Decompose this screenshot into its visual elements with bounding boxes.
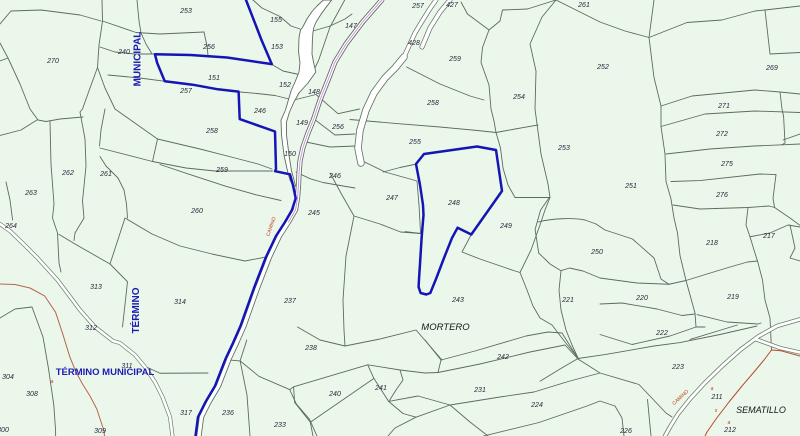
svg-text:224: 224 — [530, 402, 543, 409]
svg-text:304: 304 — [2, 374, 14, 381]
svg-text:211: 211 — [710, 394, 722, 401]
svg-text:270: 270 — [46, 58, 59, 65]
svg-text:260: 260 — [190, 208, 203, 215]
svg-text:428: 428 — [408, 40, 420, 47]
svg-text:151: 151 — [208, 75, 220, 82]
svg-text:300: 300 — [0, 427, 9, 434]
svg-text:253: 253 — [557, 145, 570, 152]
svg-text:238: 238 — [304, 345, 317, 352]
svg-text:257: 257 — [411, 3, 425, 10]
svg-text:276: 276 — [715, 192, 728, 199]
svg-text:263: 263 — [24, 190, 37, 197]
svg-text:219: 219 — [726, 294, 739, 301]
svg-text:308: 308 — [26, 391, 38, 398]
svg-text:150: 150 — [284, 151, 296, 158]
svg-text:237: 237 — [283, 298, 297, 305]
svg-text:155: 155 — [270, 17, 282, 24]
svg-text:a: a — [711, 386, 714, 392]
svg-text:221: 221 — [561, 297, 574, 304]
svg-text:241: 241 — [374, 385, 387, 392]
svg-text:251: 251 — [624, 183, 637, 190]
svg-text:217: 217 — [762, 233, 776, 240]
svg-text:153: 153 — [271, 44, 283, 51]
svg-text:226: 226 — [619, 428, 632, 435]
svg-text:249: 249 — [499, 223, 512, 230]
svg-text:271: 271 — [717, 103, 730, 110]
svg-text:272: 272 — [715, 131, 728, 138]
svg-text:223: 223 — [671, 364, 684, 371]
svg-text:252: 252 — [596, 64, 609, 71]
svg-text:a: a — [728, 420, 731, 426]
svg-text:149: 149 — [296, 120, 308, 127]
svg-text:MORTERO: MORTERO — [421, 322, 470, 333]
svg-text:212: 212 — [723, 427, 736, 434]
svg-text:253: 253 — [179, 8, 192, 15]
svg-text:258: 258 — [426, 100, 439, 107]
svg-text:246: 246 — [253, 108, 266, 115]
svg-text:231: 231 — [473, 387, 486, 394]
svg-text:243: 243 — [451, 297, 464, 304]
svg-text:255: 255 — [408, 139, 421, 146]
svg-text:261: 261 — [577, 2, 590, 9]
svg-text:148: 148 — [308, 89, 320, 96]
svg-text:247: 247 — [385, 195, 399, 202]
svg-text:259: 259 — [448, 56, 461, 63]
svg-text:258: 258 — [205, 128, 218, 135]
svg-text:313: 313 — [90, 284, 102, 291]
svg-text:218: 218 — [705, 240, 718, 247]
svg-text:233: 233 — [273, 422, 286, 429]
svg-text:242: 242 — [496, 354, 509, 361]
svg-text:240: 240 — [328, 391, 341, 398]
svg-text:309: 309 — [94, 428, 106, 435]
svg-text:MUNICIPAL: MUNICIPAL — [133, 32, 144, 87]
svg-text:254: 254 — [512, 94, 525, 101]
svg-text:245: 245 — [307, 210, 320, 217]
svg-text:275: 275 — [720, 161, 733, 168]
svg-text:246: 246 — [328, 173, 341, 180]
svg-text:256: 256 — [331, 124, 344, 131]
svg-text:a: a — [51, 379, 54, 385]
svg-text:317: 317 — [180, 410, 193, 417]
svg-text:147: 147 — [345, 23, 358, 30]
svg-text:222: 222 — [655, 330, 668, 337]
svg-text:SEMATILLO: SEMATILLO — [736, 405, 786, 415]
svg-text:261: 261 — [99, 171, 112, 178]
svg-text:269: 269 — [765, 65, 778, 72]
svg-text:220: 220 — [635, 295, 648, 302]
svg-text:236: 236 — [221, 410, 234, 417]
svg-text:257: 257 — [179, 88, 193, 95]
svg-text:TÉRMINO: TÉRMINO — [129, 287, 142, 333]
svg-text:240: 240 — [117, 49, 130, 56]
svg-text:152: 152 — [279, 82, 291, 89]
svg-text:427: 427 — [446, 2, 459, 9]
svg-text:248: 248 — [447, 200, 460, 207]
svg-text:256: 256 — [202, 44, 215, 51]
svg-text:314: 314 — [174, 299, 186, 306]
svg-text:262: 262 — [61, 170, 74, 177]
svg-text:312: 312 — [85, 325, 97, 332]
svg-text:264: 264 — [4, 223, 17, 230]
svg-text:TÉRMINO MUNICIPAL: TÉRMINO MUNICIPAL — [56, 367, 155, 378]
svg-text:250: 250 — [590, 249, 603, 256]
svg-text:259: 259 — [215, 167, 228, 174]
